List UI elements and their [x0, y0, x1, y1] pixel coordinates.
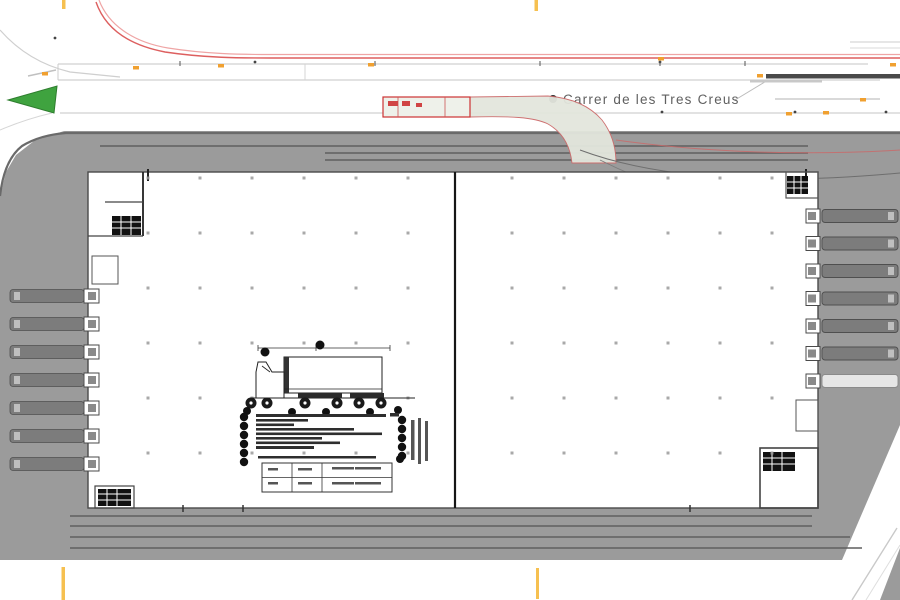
column-dot — [199, 287, 202, 290]
design-vehicle-plan — [383, 97, 470, 117]
callout-bubble — [240, 440, 248, 448]
text-line-bar — [256, 433, 382, 436]
column-dot — [303, 452, 306, 455]
signpost-dot — [794, 111, 797, 114]
callout-bubble — [316, 341, 325, 350]
parked-truck — [10, 374, 84, 387]
column-dot — [667, 342, 670, 345]
column-dot — [147, 287, 150, 290]
dock-door — [808, 240, 816, 248]
column-dot — [511, 232, 514, 235]
wheel-hub — [357, 401, 360, 404]
wheel-hub — [335, 401, 338, 404]
column-dot — [719, 287, 722, 290]
truck-cab — [14, 320, 20, 328]
text-line-bar — [256, 414, 386, 417]
column-dot — [147, 452, 150, 455]
column-dot — [355, 287, 358, 290]
callout-bubble — [398, 434, 406, 442]
truck-cab — [14, 404, 20, 412]
fold-tick — [536, 568, 539, 599]
orange-marker — [368, 63, 374, 67]
column-dot — [563, 342, 566, 345]
table-text-bar — [268, 468, 278, 471]
column-dot — [667, 452, 670, 455]
text-line-bar — [258, 456, 376, 459]
median-taper-line — [735, 80, 768, 100]
column-dot — [615, 232, 618, 235]
column-dot — [251, 287, 254, 290]
orange-marker — [133, 66, 139, 70]
table-text-bar — [355, 467, 381, 470]
truck-cab — [14, 292, 20, 300]
column-dot — [667, 287, 670, 290]
parked-truck — [10, 430, 84, 443]
column-dot — [199, 342, 202, 345]
dock-door — [808, 350, 816, 358]
callout-bubble — [261, 348, 270, 357]
warehouse-building — [10, 169, 898, 512]
callout-stack-right — [398, 416, 406, 460]
callout-bubble — [240, 422, 248, 430]
text-line-bar — [256, 446, 314, 449]
street-label: Carrer de les Tres Creus — [563, 92, 740, 107]
column-dot — [355, 452, 358, 455]
column-dot — [251, 342, 254, 345]
red-guideline-outer — [99, 0, 900, 55]
wheel-hub — [379, 401, 382, 404]
column-dot — [615, 177, 618, 180]
parked-truck — [10, 458, 84, 471]
truck-cab — [14, 348, 20, 356]
orange-marker — [757, 74, 763, 78]
column-dot — [407, 232, 410, 235]
column-dot — [355, 177, 358, 180]
red-guideline-inner — [96, 2, 900, 58]
column-dot — [563, 397, 566, 400]
callout-bubble — [240, 449, 248, 457]
stair-flight — [763, 452, 795, 471]
truck-cab — [888, 240, 894, 248]
column-dot — [147, 397, 150, 400]
axle-group — [298, 393, 342, 398]
dock-door — [88, 432, 96, 440]
column-dot — [407, 342, 410, 345]
trailer-front-band — [284, 357, 289, 393]
callout-bubble — [398, 425, 406, 433]
column-dot — [251, 177, 254, 180]
dock-door — [808, 322, 816, 330]
column-dot — [615, 397, 618, 400]
column-dot — [199, 232, 202, 235]
column-dot — [719, 177, 722, 180]
text-line-bar — [256, 424, 294, 427]
truck-cab — [14, 460, 20, 468]
column-dot — [199, 452, 202, 455]
orange-marker — [890, 63, 896, 67]
column-dot — [407, 452, 410, 455]
dock-door — [88, 292, 96, 300]
callout-bubble — [240, 413, 248, 421]
site-plan-drawing: Carrer de les Tres Creus — [0, 0, 900, 600]
column-dot — [251, 452, 254, 455]
fold-tick — [62, 567, 66, 600]
vertical-text-bar — [425, 421, 428, 461]
column-dot — [511, 287, 514, 290]
dock-door — [808, 295, 816, 303]
stair-flight — [112, 216, 141, 235]
dock-door — [88, 348, 96, 356]
green-arrow-icon — [8, 86, 57, 113]
parked-truck — [10, 318, 84, 331]
dock-door — [88, 460, 96, 468]
callout-bubble — [240, 458, 248, 466]
truck-cab — [14, 432, 20, 440]
orange-marker — [786, 112, 792, 116]
corner-pavement-wedge — [880, 548, 900, 600]
small-annotation-bar — [750, 80, 822, 83]
column-dot — [719, 452, 722, 455]
axle-group — [350, 393, 384, 398]
callout-bubble — [240, 431, 248, 439]
table-text-bar — [298, 482, 312, 485]
column-dot — [147, 342, 150, 345]
column-dot — [667, 177, 670, 180]
wheel-hub — [265, 401, 268, 404]
table-text-bar — [298, 468, 312, 471]
column-dot — [615, 287, 618, 290]
column-dot — [511, 452, 514, 455]
stair-flight — [98, 489, 131, 506]
dock-door — [88, 376, 96, 384]
curb-line — [0, 30, 120, 77]
column-dot — [771, 452, 774, 455]
dock-door — [88, 404, 96, 412]
callout-bubble — [394, 406, 402, 414]
column-dot — [303, 342, 306, 345]
dock-door — [808, 377, 816, 385]
table-text-bar — [355, 482, 381, 485]
signpost-dot — [885, 111, 888, 114]
text-line-bar — [256, 419, 308, 422]
parked-truck — [10, 290, 84, 303]
column-dot — [355, 232, 358, 235]
column-dot — [563, 232, 566, 235]
column-dot — [667, 397, 670, 400]
vehicle-hatch — [388, 101, 398, 106]
column-dot — [355, 342, 358, 345]
column-dot — [719, 232, 722, 235]
column-dot — [147, 232, 150, 235]
vehicle-hatch — [402, 101, 410, 106]
dock-door — [88, 320, 96, 328]
callout-bubble — [398, 416, 406, 424]
truck-cab — [888, 350, 894, 358]
column-dot — [407, 177, 410, 180]
column-dot — [563, 452, 566, 455]
column-dot — [667, 232, 670, 235]
truck-cab — [888, 212, 894, 220]
column-dot — [771, 177, 774, 180]
column-dot — [563, 287, 566, 290]
wheel-hub — [249, 401, 252, 404]
column-dot — [303, 232, 306, 235]
stair-core-bottom-left — [95, 486, 134, 508]
column-dot — [563, 177, 566, 180]
vertical-text-bar — [411, 420, 415, 460]
column-dot — [511, 342, 514, 345]
orange-marker — [42, 72, 48, 76]
truck-cab — [888, 322, 894, 330]
parked-truck — [822, 237, 898, 250]
parked-truck — [10, 402, 84, 415]
column-dot — [407, 287, 410, 290]
table-text-bar — [332, 482, 354, 485]
parked-truck — [822, 292, 898, 305]
empty-truck-bay — [822, 375, 898, 388]
parked-truck — [822, 210, 898, 223]
dock-door — [808, 212, 816, 220]
column-dot — [771, 342, 774, 345]
stair-flight — [787, 176, 808, 194]
column-dot — [511, 397, 514, 400]
parked-truck — [822, 265, 898, 278]
text-line-bar — [256, 442, 340, 445]
vertical-note-bars — [411, 418, 428, 464]
column-dot — [199, 397, 202, 400]
table-text-bar — [332, 467, 354, 470]
orange-marker — [218, 64, 224, 68]
column-dot — [147, 177, 150, 180]
column-dot — [615, 342, 618, 345]
column-dot — [771, 397, 774, 400]
vehicle-hatch — [416, 103, 422, 107]
wheel-hub — [303, 401, 306, 404]
truck-cab — [888, 295, 894, 303]
truck-cab — [14, 376, 20, 384]
fold-tick — [535, 0, 539, 11]
column-dot — [303, 177, 306, 180]
building-outline — [88, 172, 818, 508]
parked-truck — [822, 347, 898, 360]
orange-marker — [823, 111, 829, 115]
trailer-body — [284, 357, 382, 393]
column-dot — [719, 397, 722, 400]
dock-door — [808, 267, 816, 275]
table-text-bar — [268, 482, 278, 485]
signpost-dot — [54, 37, 57, 40]
orange-marker — [860, 98, 866, 102]
column-dot — [251, 232, 254, 235]
orange-marker — [658, 57, 664, 61]
callout-bubble — [398, 443, 406, 451]
callout-bubble — [396, 455, 404, 463]
site-plan-canvas: Carrer de les Tres Creus — [0, 0, 900, 600]
parked-truck — [10, 346, 84, 359]
median-island — [766, 74, 900, 79]
column-dot — [615, 452, 618, 455]
vertical-text-bar — [418, 418, 421, 464]
curb-line — [0, 113, 52, 130]
column-dot — [771, 287, 774, 290]
truck-cab — [888, 267, 894, 275]
column-dot — [719, 342, 722, 345]
signpost-dot — [661, 111, 664, 114]
text-line-bar — [256, 428, 354, 431]
parked-truck — [822, 320, 898, 333]
column-dot — [511, 177, 514, 180]
fold-tick — [62, 0, 66, 9]
text-line-bar — [256, 437, 322, 440]
signpost-dot — [254, 61, 257, 64]
column-dot — [199, 177, 202, 180]
column-dot — [771, 232, 774, 235]
text-line-bar — [390, 413, 399, 417]
column-dot — [303, 287, 306, 290]
